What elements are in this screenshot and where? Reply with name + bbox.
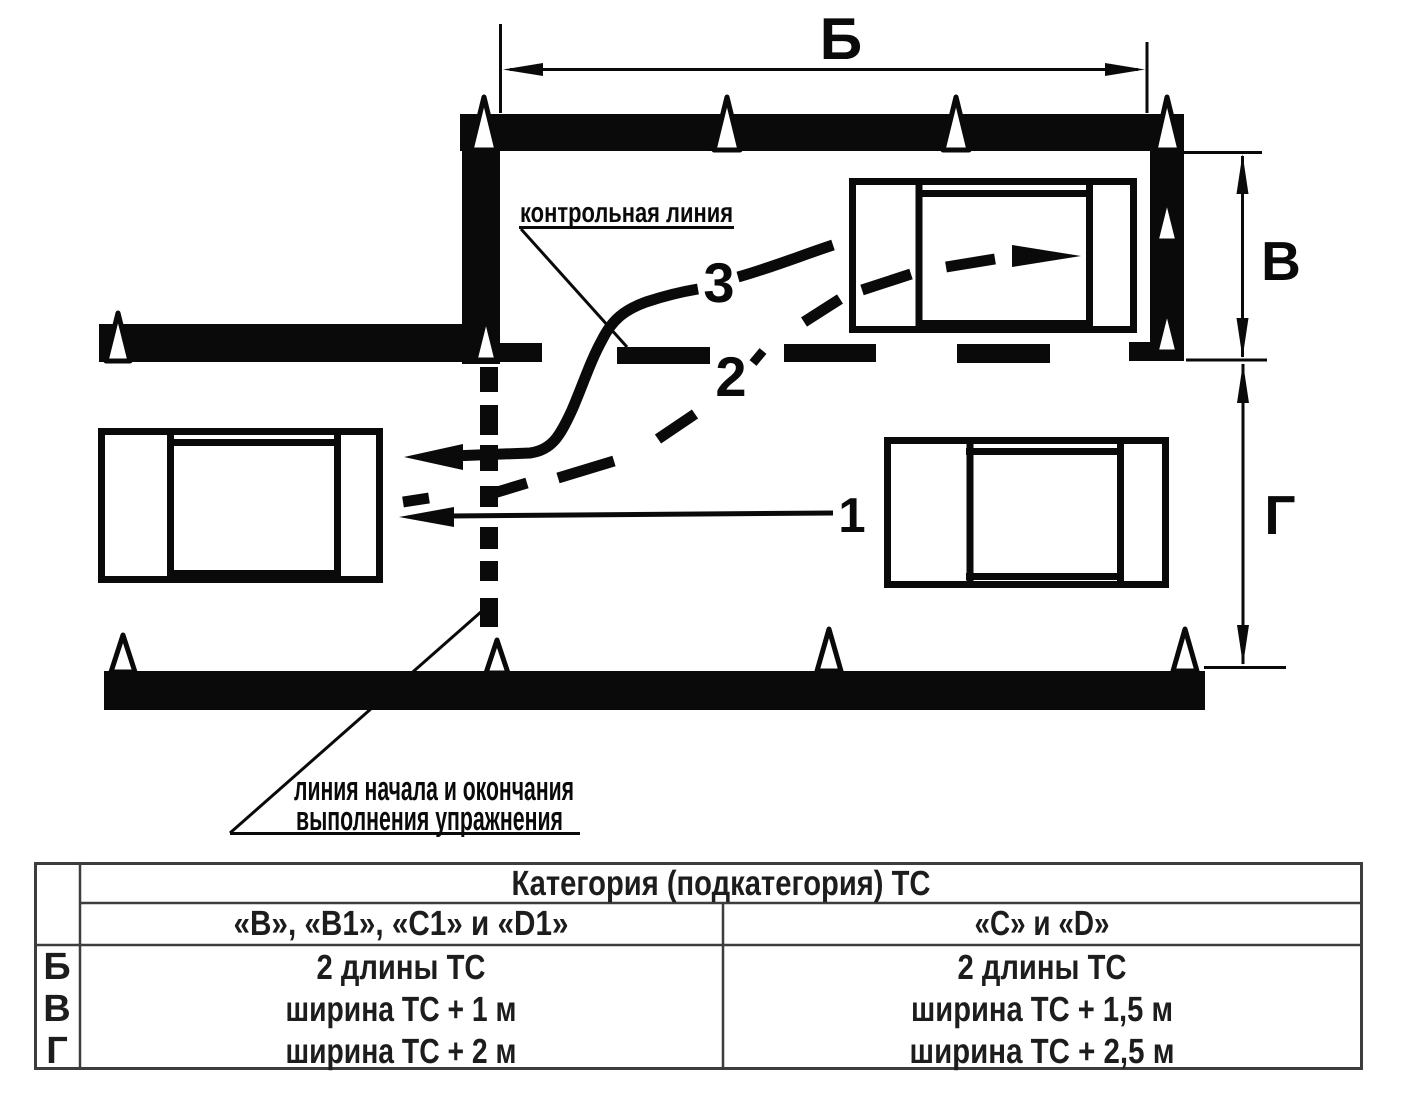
svg-text:В: В (1261, 230, 1301, 292)
svg-text:контрольная линия: контрольная линия (520, 197, 733, 228)
svg-text:ширина ТС + 2,5 м: ширина ТС + 2,5 м (910, 1032, 1175, 1071)
svg-text:ширина ТС + 1,5 м: ширина ТС + 1,5 м (911, 990, 1173, 1029)
svg-text:Б: Б (43, 946, 70, 988)
svg-text:Б: Б (820, 6, 862, 72)
svg-text:В: В (43, 988, 70, 1030)
svg-text:Г: Г (46, 1030, 68, 1072)
svg-text:2: 2 (715, 345, 746, 408)
svg-text:ширина ТС + 1 м: ширина ТС + 1 м (286, 990, 517, 1029)
svg-text:2 длины ТС: 2 длины ТС (317, 948, 486, 987)
svg-text:ширина ТС + 2 м: ширина ТС + 2 м (286, 1032, 517, 1071)
svg-text:Категория (подкатегория) ТС: Категория (подкатегория) ТС (512, 864, 931, 903)
svg-text:3: 3 (703, 251, 734, 314)
svg-text:1: 1 (838, 489, 865, 543)
svg-text:выполнения упражнения: выполнения упражнения (296, 800, 563, 838)
svg-text:«В», «В1», «С1» и «D1»: «В», «В1», «С1» и «D1» (234, 904, 569, 943)
svg-text:«С» и «D»: «С» и «D» (975, 904, 1110, 943)
svg-text:2 длины ТС: 2 длины ТС (958, 948, 1127, 987)
svg-text:Г: Г (1264, 484, 1295, 546)
